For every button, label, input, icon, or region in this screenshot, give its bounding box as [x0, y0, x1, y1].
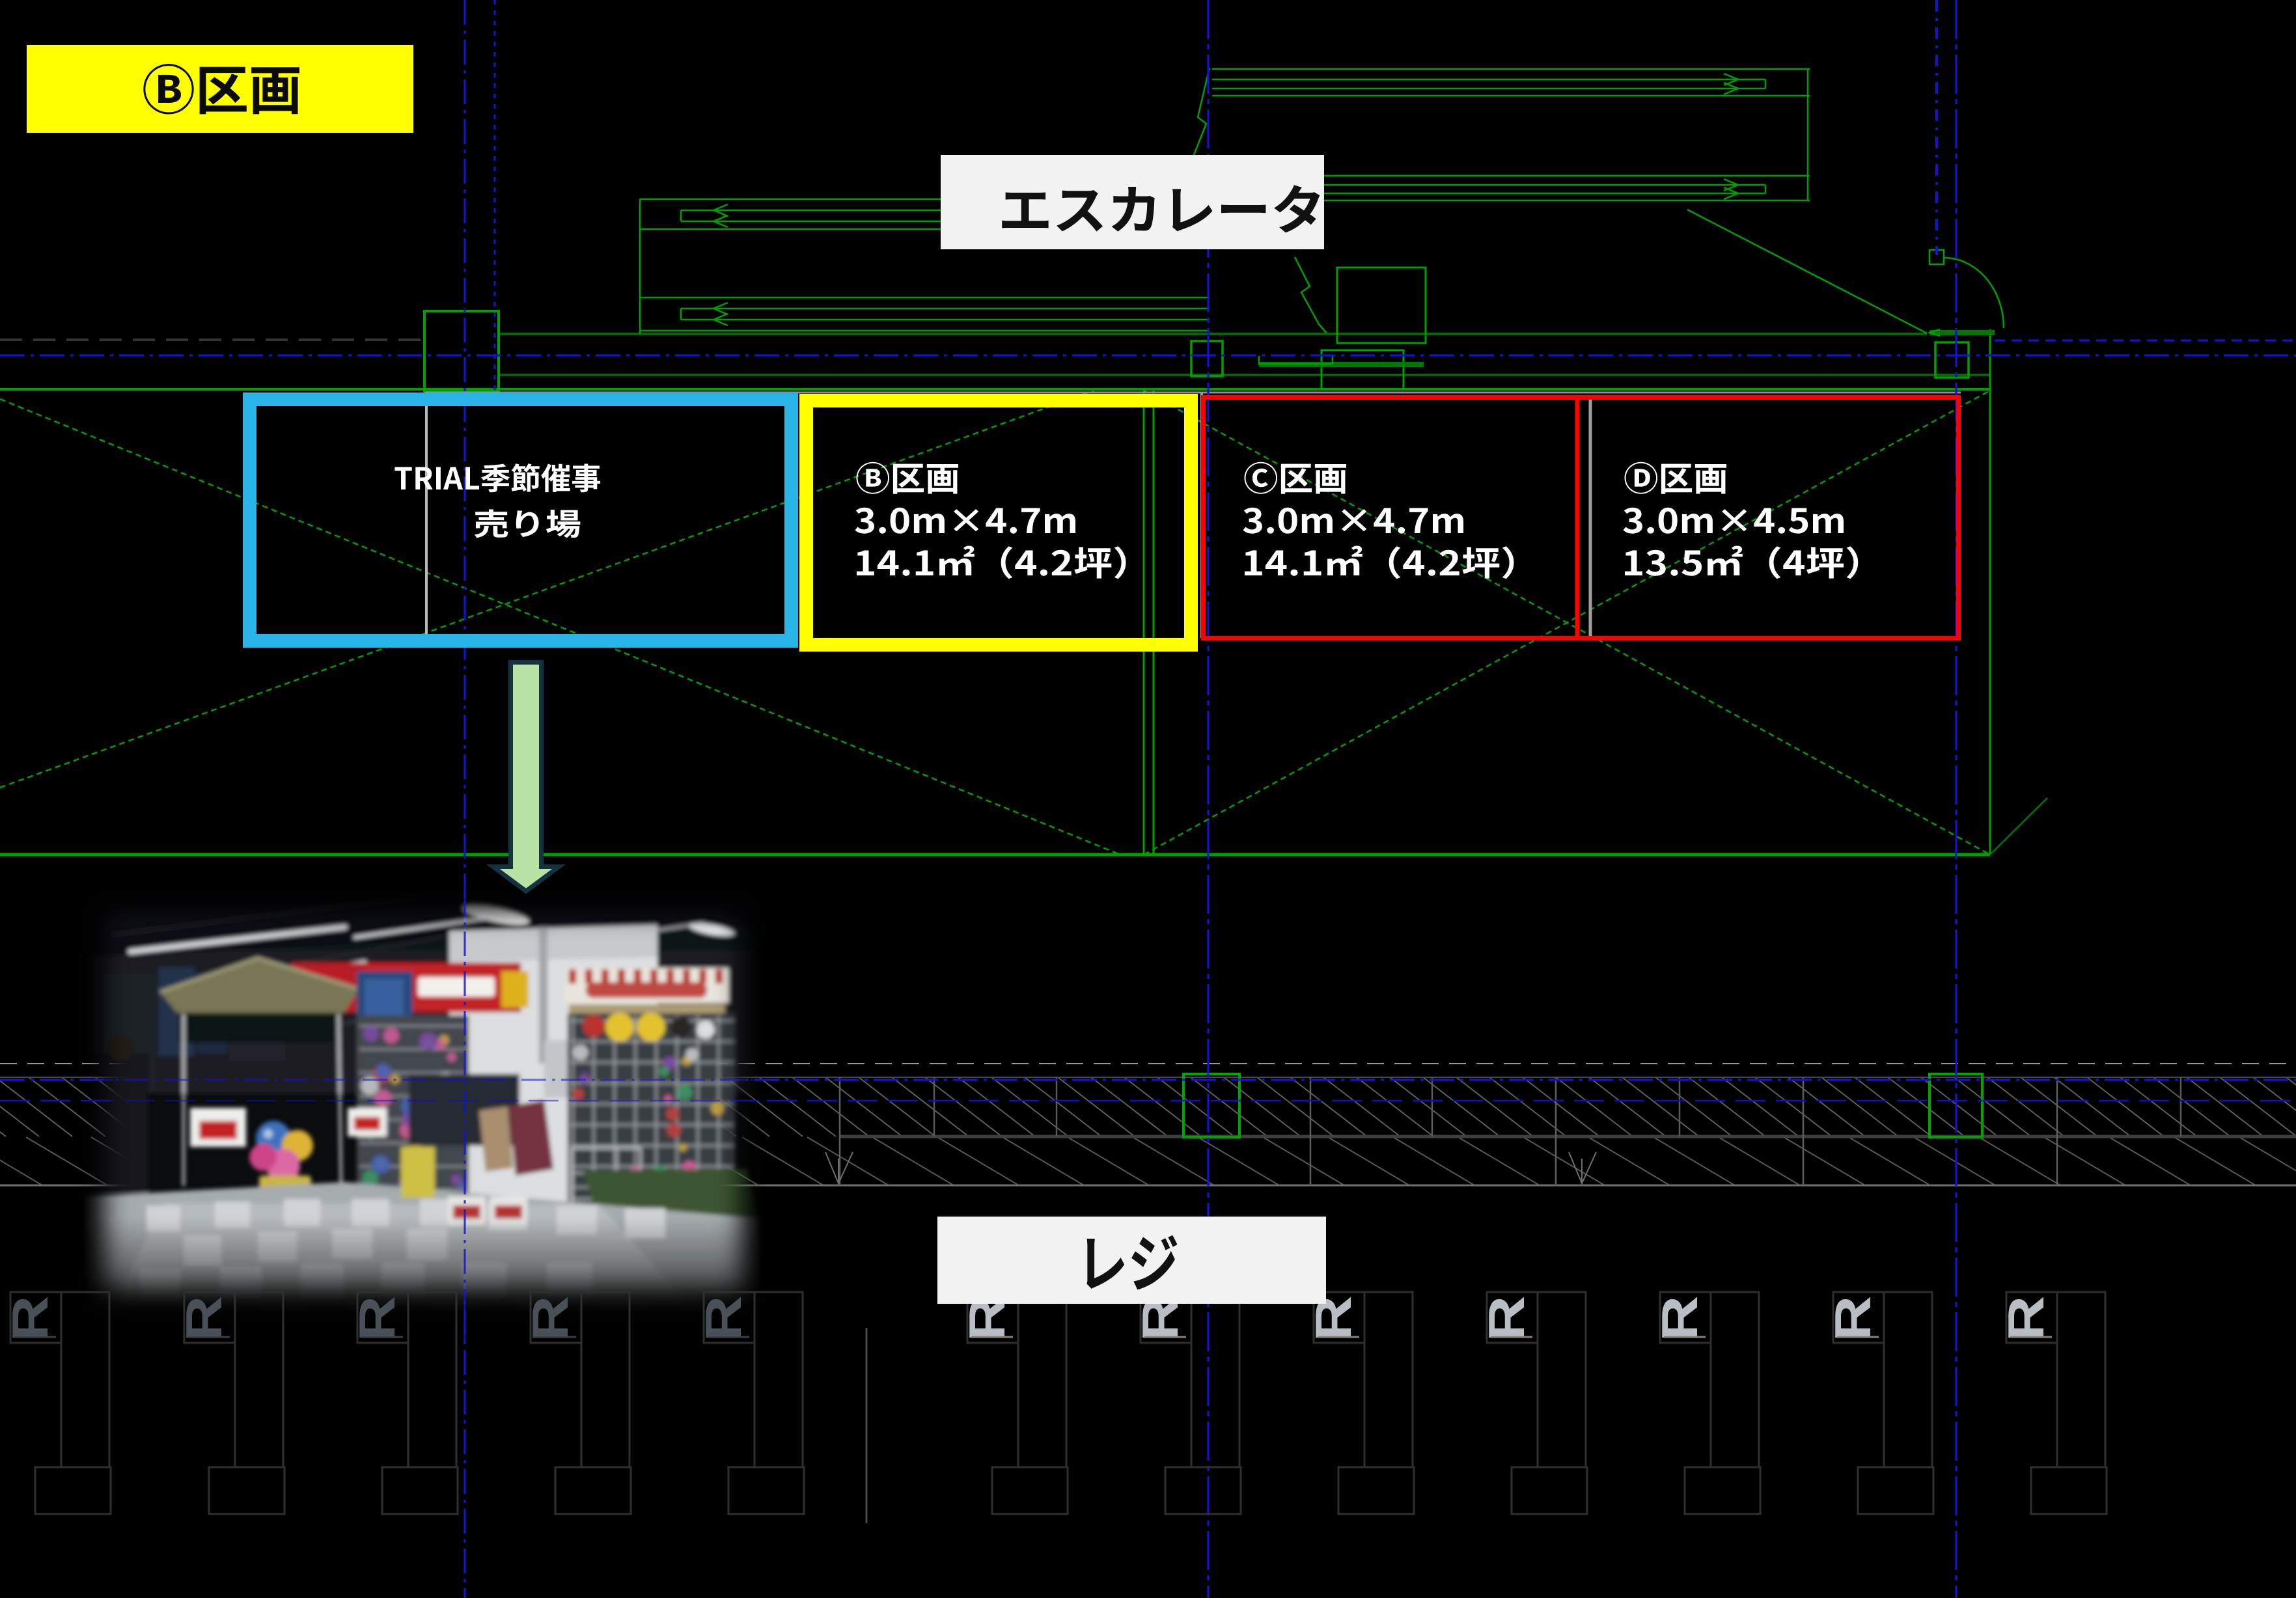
svg-text:R: R	[1651, 1296, 1708, 1342]
svg-text:R: R	[348, 1296, 405, 1342]
svg-text:R: R	[1, 1296, 58, 1342]
svg-text:R: R	[175, 1296, 232, 1342]
svg-text:R: R	[1478, 1296, 1534, 1342]
svg-text:R: R	[695, 1296, 751, 1342]
svg-text:R: R	[1997, 1296, 2054, 1342]
svg-text:R: R	[521, 1296, 578, 1342]
svg-text:R: R	[1824, 1296, 1881, 1342]
